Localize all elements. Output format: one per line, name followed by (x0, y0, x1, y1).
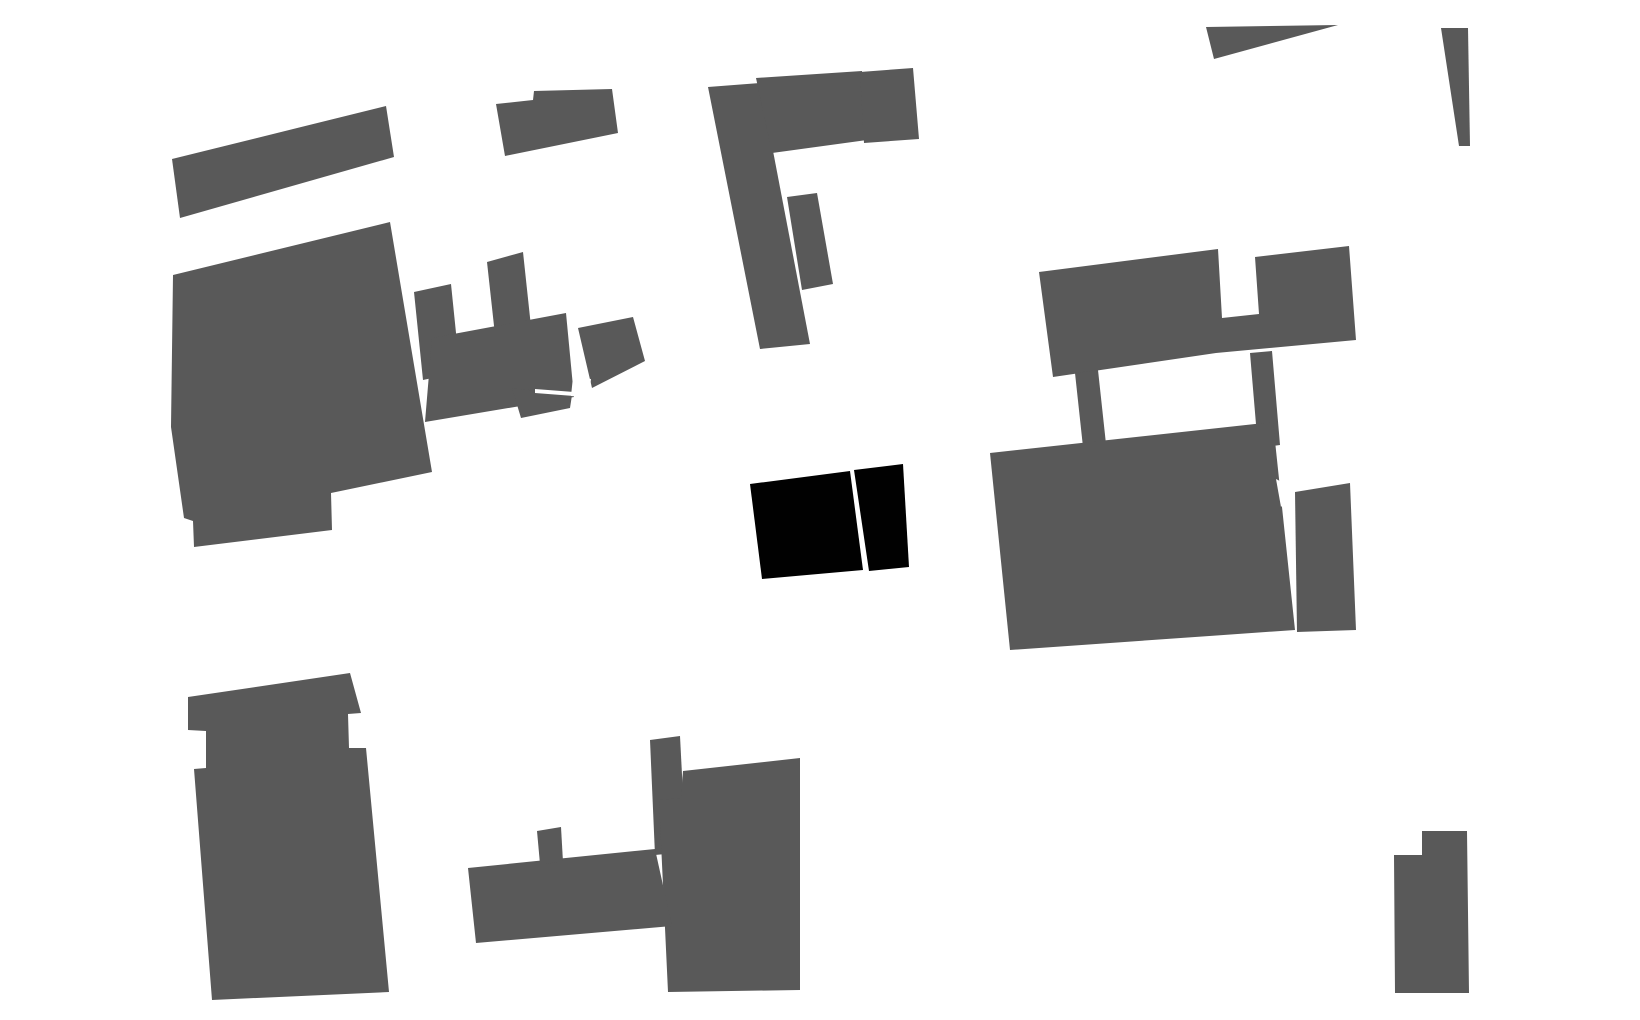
east-large-block (990, 422, 1295, 650)
north-center-end (860, 68, 919, 143)
highlighted-building-layer (750, 464, 909, 579)
cluster-notch-gap (571, 377, 591, 398)
site-plan-map (0, 0, 1640, 1020)
north-center-bar (756, 71, 867, 153)
southeast-block (1394, 831, 1469, 993)
south-center-tab (537, 827, 563, 864)
highlight-west-half (750, 471, 863, 579)
site-plan-page (0, 0, 1640, 1020)
east-block-extension (1295, 483, 1356, 632)
